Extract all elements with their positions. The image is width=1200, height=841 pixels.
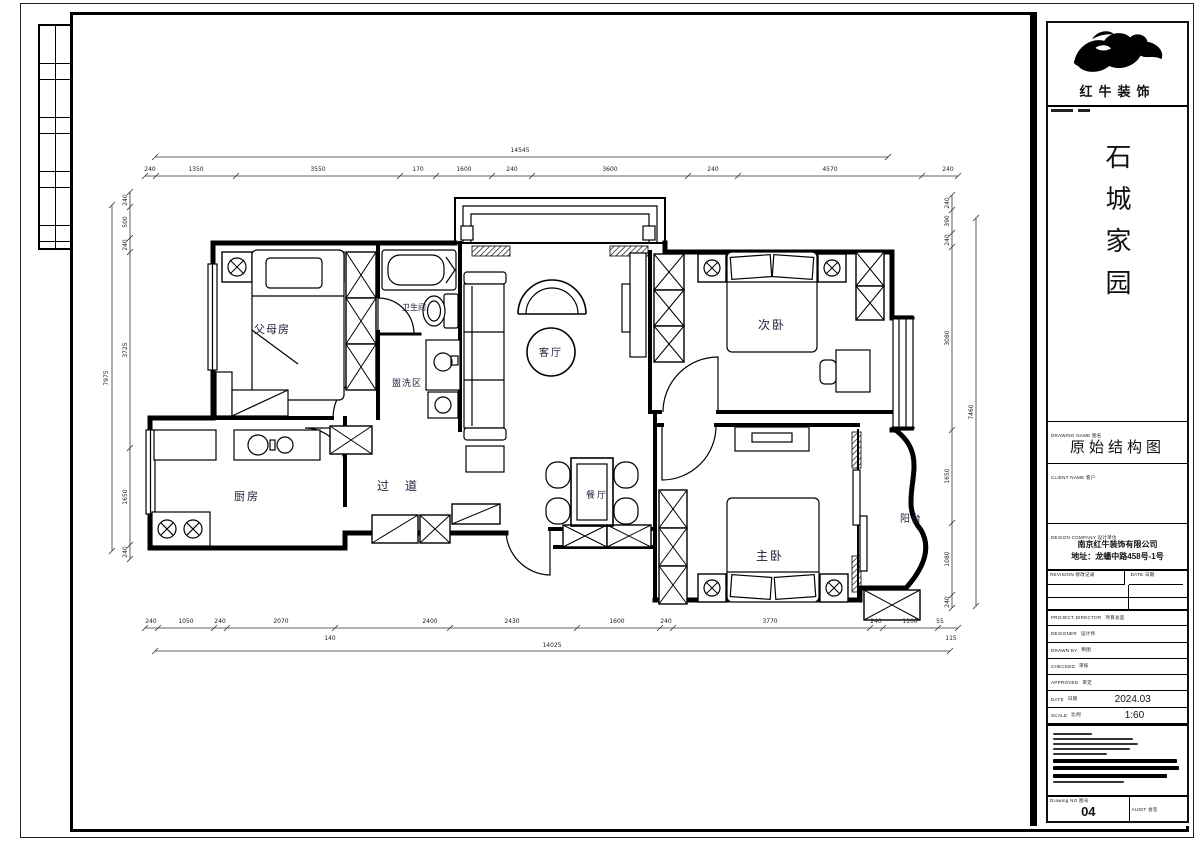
stove (152, 512, 210, 546)
side-table (466, 446, 504, 472)
shoe-cabinet (372, 515, 418, 543)
scale-value: 1:60 (1085, 710, 1184, 721)
bedroom2-door (663, 357, 718, 412)
row-scale: SCALE比例1:60 (1048, 707, 1187, 723)
dim-label: 2070 (273, 618, 288, 625)
dim-label: 3600 (602, 166, 617, 173)
dim-label: 14545 (510, 147, 529, 154)
bench (232, 390, 288, 416)
drawing-number-cell: Drawing NO 图号 04 (1048, 797, 1130, 821)
fridge-cabinet (330, 426, 372, 454)
company-address: 地址：龙蟠中路458号-1号 (1048, 551, 1187, 563)
company-label: DESIGN COMPANY 设计单位 (1048, 523, 1187, 535)
title-block: 红牛装饰 石城家园 DRAWING NAME 图名 原始结构图 CLIENT N… (1030, 12, 1193, 826)
bedroom2-bed (727, 252, 817, 352)
room-label-kitchen: 厨房 (234, 490, 260, 503)
notes-block (1048, 723, 1187, 795)
dim-label: 1650 (944, 468, 951, 483)
dim-label: 3770 (762, 618, 777, 625)
row-approved: APPROVED审定 (1048, 674, 1187, 690)
dim-label: 240 (122, 546, 129, 558)
dim-label: 240 (506, 166, 518, 173)
dim-label: 1050 (178, 618, 193, 625)
drawing-name-label: DRAWING NAME 图名 (1048, 421, 1187, 433)
dim-label: 240 (707, 166, 719, 173)
bedroom2-bay-window (893, 316, 913, 430)
dim-label: 2400 (422, 618, 437, 625)
room-label-living: 客厅 (539, 346, 563, 359)
company-info: 南京红牛装饰有限公司 地址：龙蟠中路458号-1号 (1048, 535, 1187, 569)
company-name: 南京红牛装饰有限公司 (1048, 539, 1187, 551)
drawing-number-row: Drawing NO 图号 04 AUDIT 会签 (1048, 795, 1187, 821)
dim-label: 390 (944, 215, 951, 227)
dresser (216, 372, 232, 416)
revision-table: REVISION 修改记录 DATE 日期 (1048, 569, 1187, 609)
dim-label: 240 (944, 596, 951, 608)
signature-rows: PROJECT DIRECTOR项目总监 DESIGNER设计师 DRAWN B… (1048, 609, 1187, 723)
dim-label: 1080 (944, 551, 951, 566)
dim-label: 55 (936, 618, 944, 625)
dim-label: 240 (870, 618, 882, 625)
bathtub (382, 250, 456, 290)
row-checked: CHECKED审核 (1048, 658, 1187, 674)
tv-cabinet (622, 253, 646, 357)
dim-label: 240 (944, 234, 951, 246)
dim-label: 1650 (122, 489, 129, 504)
dim-label: 7975 (103, 370, 110, 385)
room-label-bedroom2: 次卧 (758, 318, 786, 332)
desk-chair (820, 350, 870, 392)
dim-label: 7460 (968, 404, 975, 419)
dim-label: 3550 (310, 166, 325, 173)
title-block-subheader (1048, 105, 1187, 115)
audit-cell: AUDIT 会签 (1130, 797, 1187, 821)
room-label-dining: 餐厅 (586, 489, 608, 500)
row-drawn-by: DRAWN BY制图 (1048, 642, 1187, 658)
date-value: 2024.03 (1081, 694, 1184, 705)
balcony-cabinet (864, 590, 920, 620)
dim-label: 140 (324, 635, 336, 642)
client-label: CLIENT NAME 客户 (1048, 463, 1187, 475)
dim-label: 500 (122, 216, 129, 228)
armchair (518, 280, 586, 314)
dim-label: 240 (214, 618, 226, 625)
dim-label: 1350 (188, 166, 203, 173)
dim-label: 2430 (504, 618, 519, 625)
floor-plan-svg: 2401350355017016002403600240457024014545… (0, 0, 1032, 841)
dim-label: 1100 (902, 618, 917, 625)
dim-label: 240 (145, 618, 157, 625)
dim-label: 240 (942, 166, 954, 173)
kitchen-sink-counter (154, 430, 320, 460)
dim-label: 240 (944, 197, 951, 209)
dim-label: 240 (122, 194, 129, 206)
room-label-master: 主卧 (756, 549, 784, 563)
entry-door (506, 527, 550, 575)
row-date: DATE日期2024.03 (1048, 690, 1187, 706)
dim-label: 240 (122, 239, 129, 251)
room-label-bathroom: 卫生间 (402, 302, 426, 312)
dim-label: 1600 (456, 166, 471, 173)
master-bedroom-door (662, 425, 716, 480)
row-designer: DESIGNER设计师 (1048, 625, 1187, 641)
dim-label: 115 (945, 635, 957, 642)
brand-name: 红牛装饰 (1048, 81, 1187, 103)
brand-logo (1048, 23, 1187, 83)
dim-label: 240 (144, 166, 156, 173)
dim-label: 240 (660, 618, 672, 625)
entry-bay-window (455, 198, 665, 243)
room-label-balcony: 阳台 (900, 512, 922, 525)
sofa (464, 272, 506, 472)
drawing-name: 原始结构图 (1048, 433, 1187, 463)
dim-label: 170 (412, 166, 424, 173)
room-label-washarea: 盥洗区 (392, 377, 422, 388)
dim-label: 1600 (609, 618, 624, 625)
title-block-inner: 红牛装饰 石城家园 DRAWING NAME 图名 原始结构图 CLIENT N… (1046, 21, 1189, 823)
master-tv-stand (735, 427, 809, 451)
row-project-director: PROJECT DIRECTOR项目总监 (1048, 609, 1187, 625)
dim-label: 3725 (122, 342, 129, 357)
dim-label: 4570 (822, 166, 837, 173)
dim-label: 14025 (542, 642, 561, 649)
dim-label: 3080 (944, 330, 951, 345)
balcony-sliding-door (853, 470, 860, 525)
toilet (423, 294, 458, 328)
bull-logo-icon (1066, 27, 1170, 79)
room-label-corridor: 过道 (377, 479, 433, 493)
project-name-vertical: 石城家园 (1048, 117, 1187, 417)
wash-basin-cabinet (426, 340, 460, 418)
room-label-parents: 父母房 (254, 323, 290, 336)
drawing-number: 04 (1048, 804, 1129, 819)
